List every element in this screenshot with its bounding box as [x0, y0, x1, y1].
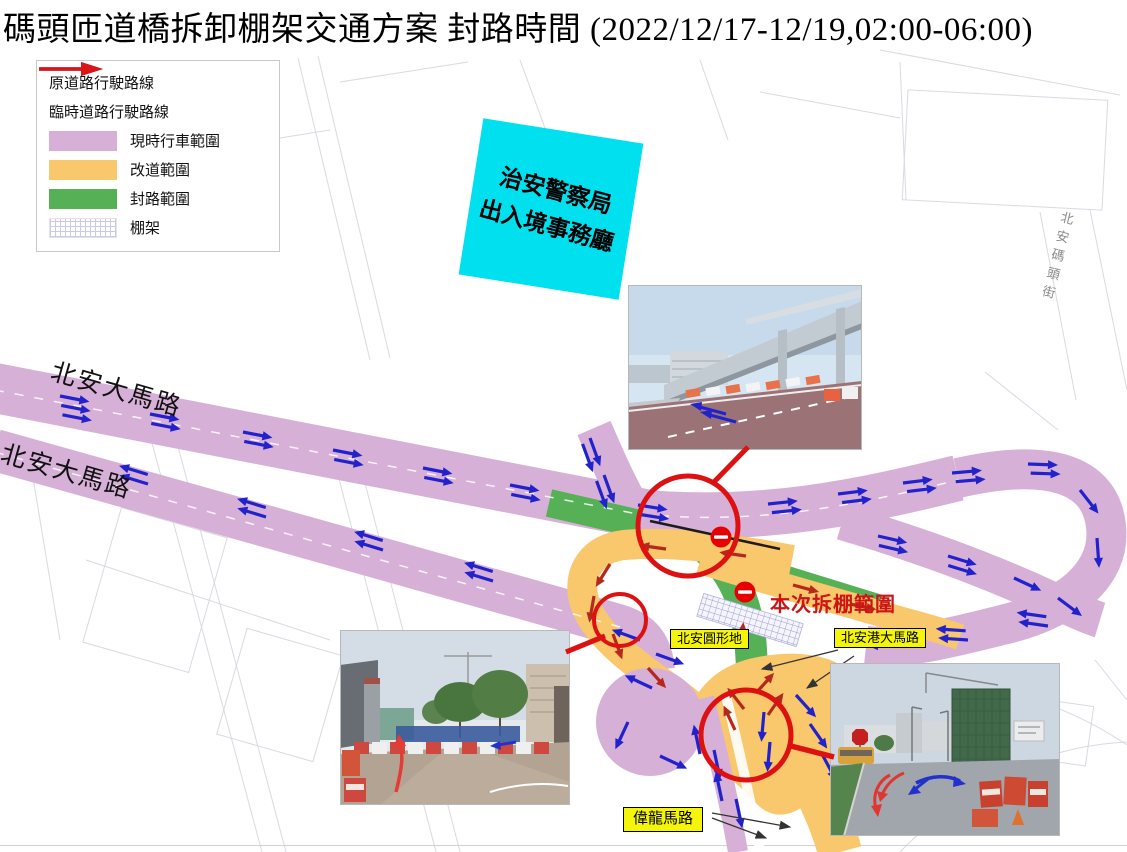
legend-label: 改道範圍: [130, 159, 190, 180]
no-entry-sign-icon: [735, 582, 756, 603]
roundabout-area: [596, 668, 704, 776]
legend-label: 封路範圍: [130, 188, 190, 209]
legend-row-temporary-route: 臨時道路行駛路線: [49, 97, 271, 126]
closure-area-swatch: [49, 189, 117, 209]
legend-label: 棚架: [130, 217, 160, 238]
scaffold-swatch: [49, 218, 117, 238]
diversion-area-swatch: [49, 160, 117, 180]
demolition-area-annotation: 本次拆棚範圍: [770, 588, 896, 617]
legend-label: 現時行車範圍: [130, 130, 220, 151]
label-pac-on-port-avenue: 北安港大馬路: [834, 628, 926, 648]
building-immigration-hall: 治安警察局 出入境事務廳: [459, 118, 644, 299]
green-mesh-building: [952, 689, 1010, 769]
legend: 原道路行駛路線 臨時道路行駛路線 現時行車範圍 改道範圍 封路範圍 棚架: [36, 60, 280, 252]
red-arrow-icon: [37, 61, 105, 77]
current-area-swatch: [49, 131, 117, 151]
no-entry-sign-icon: [711, 527, 732, 548]
traffic-plan-page: 碼頭匝道橋拆卸棚架交通方案 封路時間 (2022/12/17-12/19,02:…: [0, 0, 1127, 852]
legend-row-scaffold: 棚架: [49, 213, 271, 242]
label-wai-long-avenue: 偉龍馬路: [623, 807, 703, 832]
legend-row-closure-area: 封路範圍: [49, 184, 271, 213]
photo-inset-viaduct: [628, 285, 862, 450]
label-roundabout: 北安圓形地: [670, 629, 749, 649]
legend-label: 臨時道路行駛路線: [49, 101, 169, 122]
legend-row-diversion-area: 改道範圍: [49, 155, 271, 184]
photo-inset-street-barriers: [340, 630, 570, 805]
photo-inset-junction: [830, 663, 1060, 836]
legend-row-current-area: 現時行車範圍: [49, 126, 271, 155]
